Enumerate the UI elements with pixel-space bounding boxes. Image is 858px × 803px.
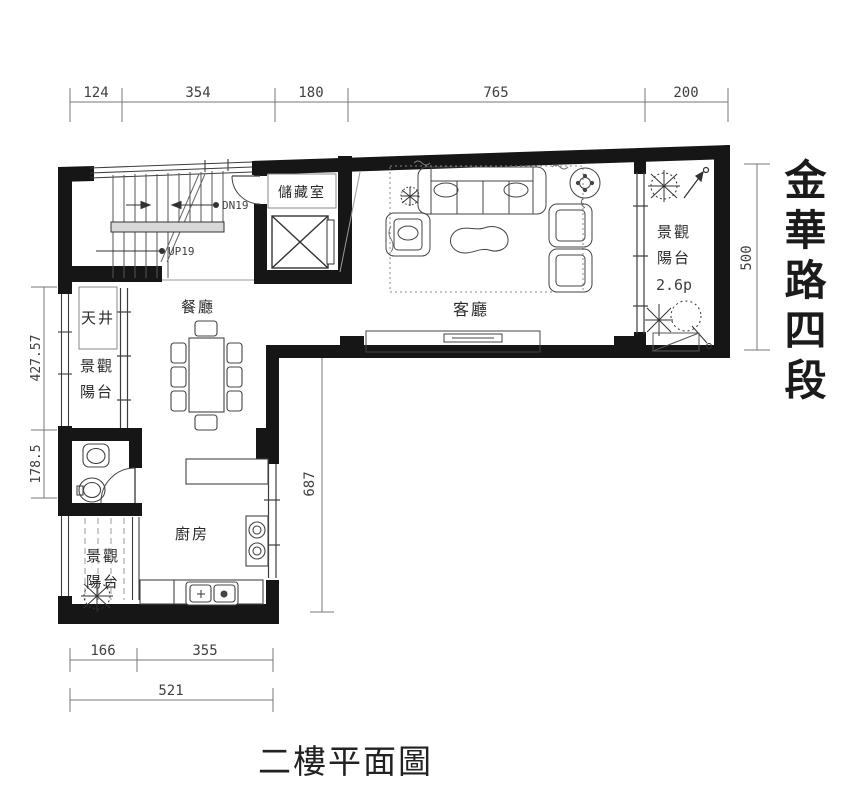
dining-chair [171,391,186,411]
dining-chair [195,415,217,430]
dim-left-lower: 178.5 [29,444,44,483]
dim-bottom-total: 521 [158,683,183,699]
dining-chair [227,343,242,363]
rug [390,166,583,292]
dining-chair [227,367,242,387]
stair-up-label: UP19 [168,245,195,258]
balcony-right: 景觀 陽台 2.6p [645,168,712,352]
left-upper-window [58,294,72,426]
left-lower-window [62,516,69,596]
dining-table [189,338,224,412]
balcony2-kitchen-divider-window [133,517,140,600]
dim-left-upper: 427.57 [29,335,44,382]
dining-room [171,321,242,430]
living-room [366,161,600,352]
dim-top-4: 765 [483,85,508,101]
sofa [418,167,546,214]
coffee-table [450,227,508,253]
dim-right: 500 [739,245,755,270]
dining-chair [227,391,242,411]
balcony-left-lower: 景觀 陽台 [81,518,124,612]
balcony-left-lower-label-1: 景觀 [86,548,120,565]
elevator-door [327,220,334,264]
dim-center: 687 [302,471,318,496]
top-window-band [90,159,252,178]
stair-handrail [111,222,224,232]
side-table [570,168,600,208]
balcony-right-label-1: 景觀 [657,224,691,241]
dim-top-5: 200 [673,85,698,101]
balcony-left-upper-label-1: 景觀 [80,358,114,375]
living-balcony-window [633,172,648,334]
dim-top-1: 124 [83,85,108,101]
dim-top-2: 354 [185,85,210,101]
dim-top-3: 180 [298,85,323,101]
outer-walls [58,145,730,624]
bathroom-door-swing [101,468,135,503]
armchair-right-1 [549,204,592,247]
kitchen-label: 廚房 [175,525,209,543]
storage-room-label: 儲藏室 [278,184,326,200]
balcony-right-area: 2.6p [656,276,692,294]
balcony-left-upper: 景觀 陽台 [80,358,114,401]
elevator [272,216,334,268]
armchair-right-2 [549,249,592,292]
dining-room-label: 餐廳 [181,298,215,316]
dining-chair [171,343,186,363]
dining-chair [171,367,186,387]
light-well: 天井 [79,287,117,349]
dim-bottom-right: 355 [192,643,217,659]
dining-chair [195,321,217,336]
staircase [111,171,254,280]
dining-balcony-window [117,288,131,428]
stair-down-label: DN19 [222,199,249,212]
dimension-top [70,88,728,122]
kitchen-counter-upper [186,459,268,484]
dim-bottom-left: 166 [90,643,115,659]
balcony-left-upper-label-2: 陽台 [80,384,114,401]
floor-plan-drawing: DN19 UP19 儲藏室 天井 景觀 陽台 餐廳 [0,0,858,803]
balcony-plant-top [648,170,680,202]
street-name: 金華路四段 [781,158,823,408]
plant-small [401,187,419,206]
floor-plan-page: DN19 UP19 儲藏室 天井 景觀 陽台 餐廳 [0,0,858,803]
plan-title: 二樓平面圖 [258,735,433,783]
balcony-right-label-2: 陽台 [657,250,691,267]
north-arrow [684,168,709,199]
balcony-left-lower-label-2: 陽台 [86,574,120,591]
bathroom [77,444,135,503]
light-well-label: 天井 [81,310,115,327]
living-room-label: 客廳 [453,300,489,319]
